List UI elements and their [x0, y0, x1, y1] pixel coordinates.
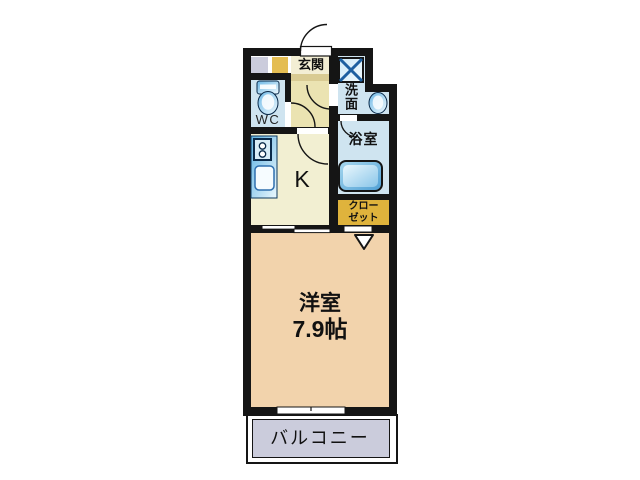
bathroom-label: 浴室	[338, 128, 389, 150]
entrance-step	[291, 74, 331, 81]
wall-right	[389, 84, 397, 416]
wall-bath-top	[331, 114, 397, 121]
wall-bottom	[243, 407, 397, 416]
kitchen-label: K	[282, 163, 322, 195]
entrance-gray-block	[251, 57, 268, 74]
western-room-size: 7.9帖	[293, 316, 348, 342]
wall-wc-right	[285, 73, 291, 130]
washroom-label: 洗面	[340, 78, 359, 115]
floor-plan: 玄関 洗面 WC 浴室 K クロー ゼット 洋室 7.9帖 バルコニー	[0, 0, 640, 480]
balcony-label: バルコニー	[252, 424, 388, 452]
shoe-cabinet-block	[272, 57, 288, 74]
wall-top	[243, 48, 373, 56]
wall-room-top	[243, 225, 397, 233]
wc-label: WC	[251, 111, 285, 129]
closet-label-line2: ゼット	[349, 213, 379, 225]
western-room-name: 洋室	[299, 292, 341, 316]
closet-label: クロー ゼット	[338, 200, 389, 225]
wall-center-vertical	[329, 56, 338, 232]
entrance-label: 玄関	[291, 56, 331, 74]
western-room-label: 洋室 7.9帖	[251, 286, 389, 348]
closet-label-line1: クロー	[349, 201, 379, 213]
